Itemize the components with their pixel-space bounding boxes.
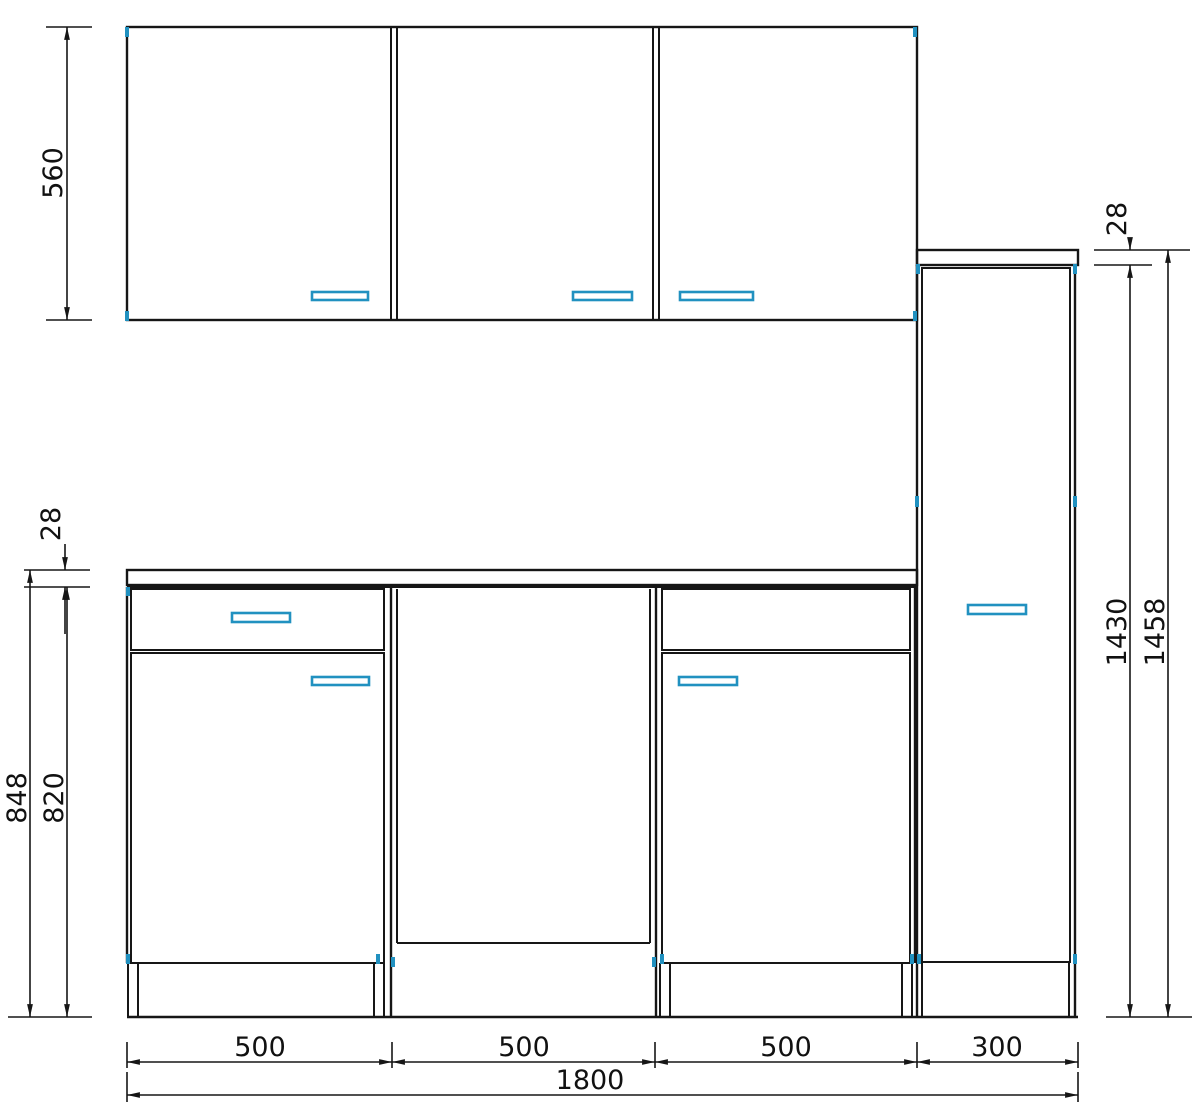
base-cabinet-1	[127, 587, 384, 1017]
dim-label: 28	[1102, 202, 1133, 236]
corner-tick	[652, 957, 656, 967]
corner-tick	[126, 954, 130, 964]
door-front	[131, 653, 384, 963]
wall-door-handle	[680, 292, 753, 300]
corner-tick	[910, 954, 914, 964]
wall-cabinet-body	[127, 27, 917, 320]
dim-label: 1800	[556, 1065, 625, 1096]
dim-worktop-thickness-left: 28	[24, 507, 90, 634]
door-handle	[679, 677, 737, 685]
countertop	[127, 570, 917, 587]
corner-tick	[125, 27, 129, 37]
dim-label: 1430	[1102, 598, 1133, 667]
drawer-front	[662, 589, 910, 650]
dim-tall-total-height: 1458	[1140, 250, 1171, 1017]
dim-label: 560	[38, 147, 69, 199]
dim-base-cabinet-height: 820	[39, 587, 70, 1017]
wall-door-handle	[312, 292, 368, 300]
corner-tick	[1073, 264, 1077, 274]
wall-door-handle	[573, 292, 632, 300]
base-cabinet-3	[660, 587, 915, 1017]
tall-top-panel	[917, 250, 1078, 265]
corner-tick	[916, 264, 920, 274]
dim-label: 300	[971, 1032, 1023, 1063]
corner-tick	[376, 954, 380, 964]
elevation-drawing: 560 28 848 820 28 1430 1458	[0, 0, 1200, 1117]
corner-tick	[1073, 954, 1077, 964]
dim-label: 848	[2, 772, 33, 824]
drawer-handle	[232, 613, 290, 622]
corner-tick	[917, 954, 921, 964]
dim-wall-cabinet-height: 560	[38, 27, 92, 320]
dim-label: 28	[36, 507, 67, 541]
corner-tick-marks	[125, 27, 1077, 967]
tall-door-handle	[968, 605, 1026, 614]
dim-label: 500	[234, 1032, 286, 1063]
corner-tick	[391, 957, 395, 967]
dim-width-segments: 500 500 500 300	[127, 1032, 1078, 1068]
door-front	[662, 653, 910, 963]
hinge-tick	[915, 496, 919, 507]
corner-tick	[126, 587, 130, 596]
dim-label: 1458	[1140, 598, 1171, 667]
appliance-bay	[391, 587, 656, 1017]
hinge-tick	[1073, 496, 1077, 507]
dim-label: 500	[498, 1032, 550, 1063]
corner-tick	[913, 311, 917, 321]
elevation-canvas: 560 28 848 820 28 1430 1458	[0, 0, 1200, 1117]
corner-tick	[913, 27, 917, 37]
dim-label: 500	[760, 1032, 812, 1063]
corner-tick	[125, 311, 129, 321]
dim-top-panel-thickness-right: 28	[1094, 202, 1190, 265]
tall-cabinet	[917, 250, 1078, 1017]
corner-tick	[660, 954, 664, 964]
countertop-panel	[127, 570, 917, 585]
door-handle	[312, 677, 369, 685]
dim-label: 820	[39, 772, 70, 824]
wall-cabinet-run	[127, 27, 917, 320]
dim-total-width: 1800	[127, 1065, 1078, 1102]
